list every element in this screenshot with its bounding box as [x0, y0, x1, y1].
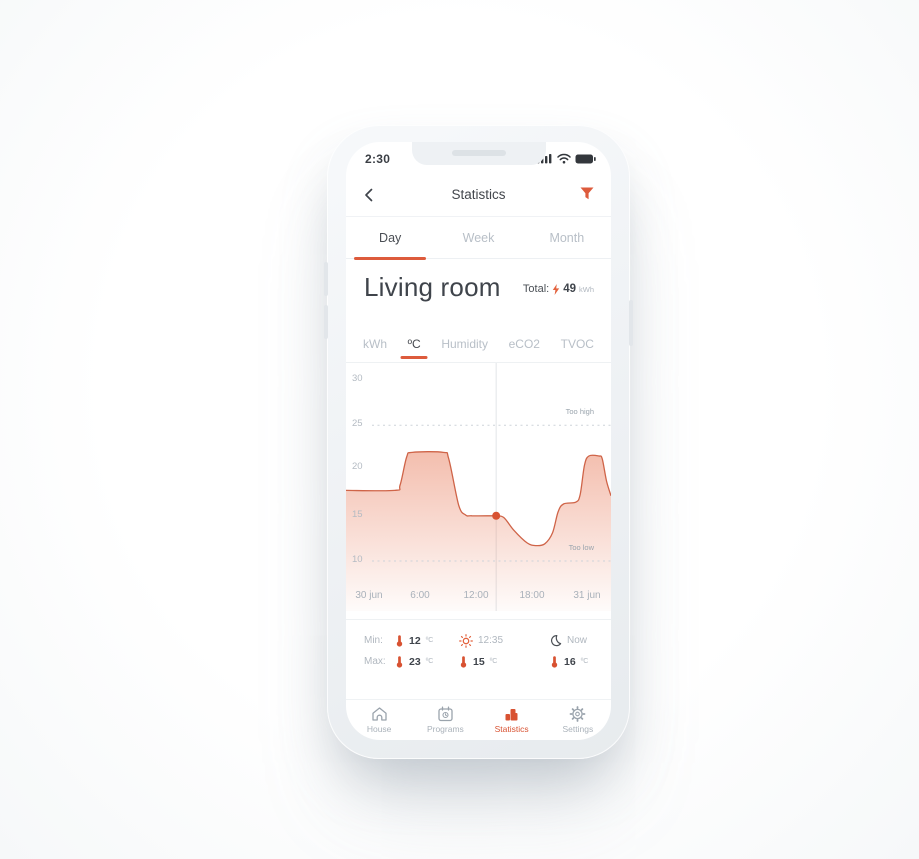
y-tick: 20 — [352, 461, 363, 472]
nav-house-label: House — [367, 724, 392, 734]
midday-column: 12:35 15 ºC — [459, 632, 503, 670]
tab-humidity[interactable]: Humidity — [439, 327, 490, 361]
total-label: Total: — [523, 283, 549, 295]
sun-time: 12:35 — [478, 635, 503, 646]
tab-tvoc[interactable]: TVOC — [559, 327, 596, 361]
x-tick: 12:00 — [463, 590, 488, 601]
active-tab-underline — [354, 257, 426, 261]
moon-row: Now — [550, 632, 588, 649]
y-tick: 10 — [352, 554, 363, 565]
total-value: 49 — [563, 283, 576, 295]
tab-celsius[interactable]: ºC — [406, 327, 423, 361]
thermometer-icon — [550, 655, 559, 668]
sun-row: 12:35 — [459, 632, 503, 649]
total-energy: Total: 49 kWh — [523, 283, 594, 295]
sun-icon — [459, 634, 473, 648]
sun-temp-unit: ºC — [490, 658, 498, 665]
metric-tabs: kWh ºC Humidity eCO2 TVOC — [346, 326, 611, 363]
min-value: 12 — [409, 635, 421, 647]
thermometer-icon — [459, 655, 468, 668]
area-fill — [346, 452, 611, 611]
moon-icon — [550, 634, 562, 647]
x-tick: 30 jun — [355, 590, 382, 601]
power-button — [629, 300, 633, 346]
tab-humidity-label: Humidity — [441, 337, 488, 351]
y-tick: 30 — [352, 373, 363, 384]
min-row: Min: 12 ºC — [364, 632, 433, 649]
active-metric-underline — [401, 356, 428, 359]
clock-time: 2:30 — [365, 152, 390, 166]
app-screen: 2:30 — [346, 142, 611, 740]
now-column: Now 16 ºC — [550, 632, 588, 670]
gear-icon — [569, 706, 586, 722]
now-temp-value: 16 — [564, 656, 576, 668]
nav-programs-label: Programs — [427, 724, 464, 734]
volume-down-button — [324, 305, 328, 339]
lightning-bolt-icon — [552, 284, 560, 295]
nav-statistics[interactable]: Statistics — [479, 706, 545, 734]
filter-icon[interactable] — [580, 187, 594, 200]
nav-settings[interactable]: Settings — [545, 706, 611, 734]
x-tick: 31 jun — [573, 590, 600, 601]
now-temp-unit: ºC — [581, 658, 589, 665]
room-header: Living room Total: 49 kWh — [364, 272, 594, 312]
tab-celsius-label: ºC — [408, 337, 421, 351]
battery-icon — [575, 154, 596, 164]
too-low-label: Too low — [569, 543, 594, 552]
min-label: Min: — [364, 635, 390, 646]
bar-chart-icon — [503, 706, 520, 722]
tab-month-label: Month — [549, 231, 584, 245]
sun-temp-value: 15 — [473, 656, 485, 668]
nav-statistics-label: Statistics — [495, 724, 529, 734]
midday-temp-row: 15 ºC — [459, 653, 503, 670]
volume-up-button — [324, 262, 328, 296]
thermometer-icon — [395, 634, 404, 647]
max-row: Max: 23 ºC — [364, 653, 433, 670]
speaker-slot — [452, 150, 506, 156]
wifi-icon — [557, 153, 571, 164]
now-label: Now — [567, 635, 587, 646]
now-temp-row: 16 ºC — [550, 653, 588, 670]
daily-stats-panel: Min: 12 ºC Max: 23 ºC — [346, 619, 611, 699]
phone-mockup: 2:30 — [327, 125, 630, 759]
house-icon — [371, 706, 388, 722]
tab-day-label: Day — [379, 231, 401, 245]
x-tick: 6:00 — [410, 590, 429, 601]
nav-programs[interactable]: Programs — [412, 706, 478, 734]
x-tick: 18:00 — [519, 590, 544, 601]
tab-month[interactable]: Month — [523, 217, 611, 258]
chart-plot — [346, 363, 611, 611]
tab-eco2[interactable]: eCO2 — [507, 327, 542, 361]
min-unit: ºC — [426, 637, 434, 644]
tab-kwh-label: kWh — [363, 337, 387, 351]
total-unit: kWh — [579, 285, 594, 294]
bottom-nav: House Programs Statistics — [346, 699, 611, 740]
tab-week-label: Week — [463, 231, 495, 245]
selected-point-dot[interactable] — [492, 512, 500, 520]
nav-settings-label: Settings — [563, 724, 594, 734]
calendar-icon — [437, 706, 454, 722]
nav-house[interactable]: House — [346, 706, 412, 734]
too-high-label: Too high — [566, 407, 594, 416]
tab-kwh[interactable]: kWh — [361, 327, 389, 361]
minmax-column: Min: 12 ºC Max: 23 ºC — [364, 632, 433, 670]
max-label: Max: — [364, 656, 390, 667]
tab-tvoc-label: TVOC — [561, 337, 594, 351]
max-value: 23 — [409, 656, 421, 668]
phone-notch — [412, 142, 546, 165]
y-tick: 15 — [352, 509, 363, 520]
thermometer-icon — [395, 655, 404, 668]
page-header: Statistics — [346, 174, 611, 217]
period-tabs: Day Week Month — [346, 217, 611, 259]
tab-week[interactable]: Week — [434, 217, 522, 258]
tab-day[interactable]: Day — [346, 217, 434, 258]
temperature-chart[interactable]: 30 25 20 15 10 Too high Too low 30 jun 6… — [346, 363, 611, 619]
tab-eco2-label: eCO2 — [509, 337, 540, 351]
max-unit: ºC — [426, 658, 434, 665]
y-tick: 25 — [352, 418, 363, 429]
page-title: Statistics — [346, 187, 611, 202]
